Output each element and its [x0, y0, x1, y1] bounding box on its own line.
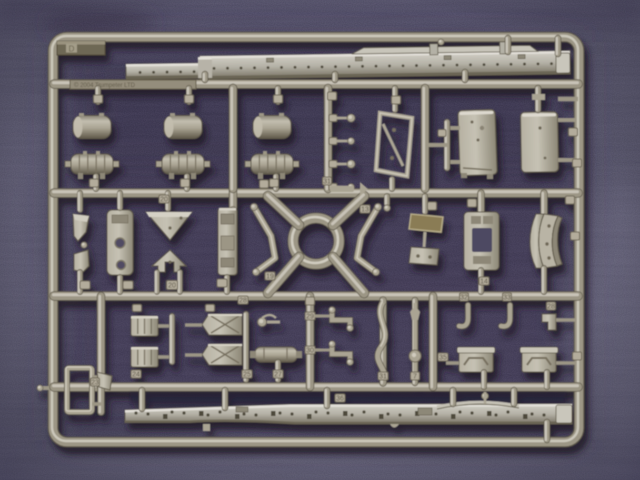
- svg-text:24: 24: [132, 372, 140, 379]
- svg-text:36: 36: [336, 396, 344, 403]
- svg-text:© 2004 Trumpeter LTD: © 2004 Trumpeter LTD: [74, 82, 136, 89]
- svg-text:14: 14: [480, 279, 488, 286]
- svg-text:13: 13: [361, 207, 369, 214]
- svg-text:35: 35: [439, 355, 447, 362]
- svg-text:32: 32: [460, 295, 468, 302]
- svg-text:28: 28: [547, 304, 555, 311]
- svg-text:23: 23: [91, 380, 99, 387]
- svg-text:20: 20: [168, 283, 176, 290]
- svg-text:31: 31: [379, 374, 387, 381]
- svg-text:D: D: [69, 45, 75, 54]
- svg-text:33: 33: [503, 295, 511, 302]
- svg-text:31: 31: [323, 179, 331, 186]
- svg-text:19: 19: [266, 274, 274, 281]
- svg-text:20: 20: [160, 197, 168, 204]
- svg-text:27: 27: [274, 372, 282, 379]
- svg-text:30: 30: [306, 348, 314, 355]
- svg-text:29: 29: [306, 314, 314, 321]
- svg-text:25: 25: [243, 372, 251, 379]
- svg-text:7: 7: [413, 374, 417, 381]
- svg-text:28: 28: [239, 298, 247, 305]
